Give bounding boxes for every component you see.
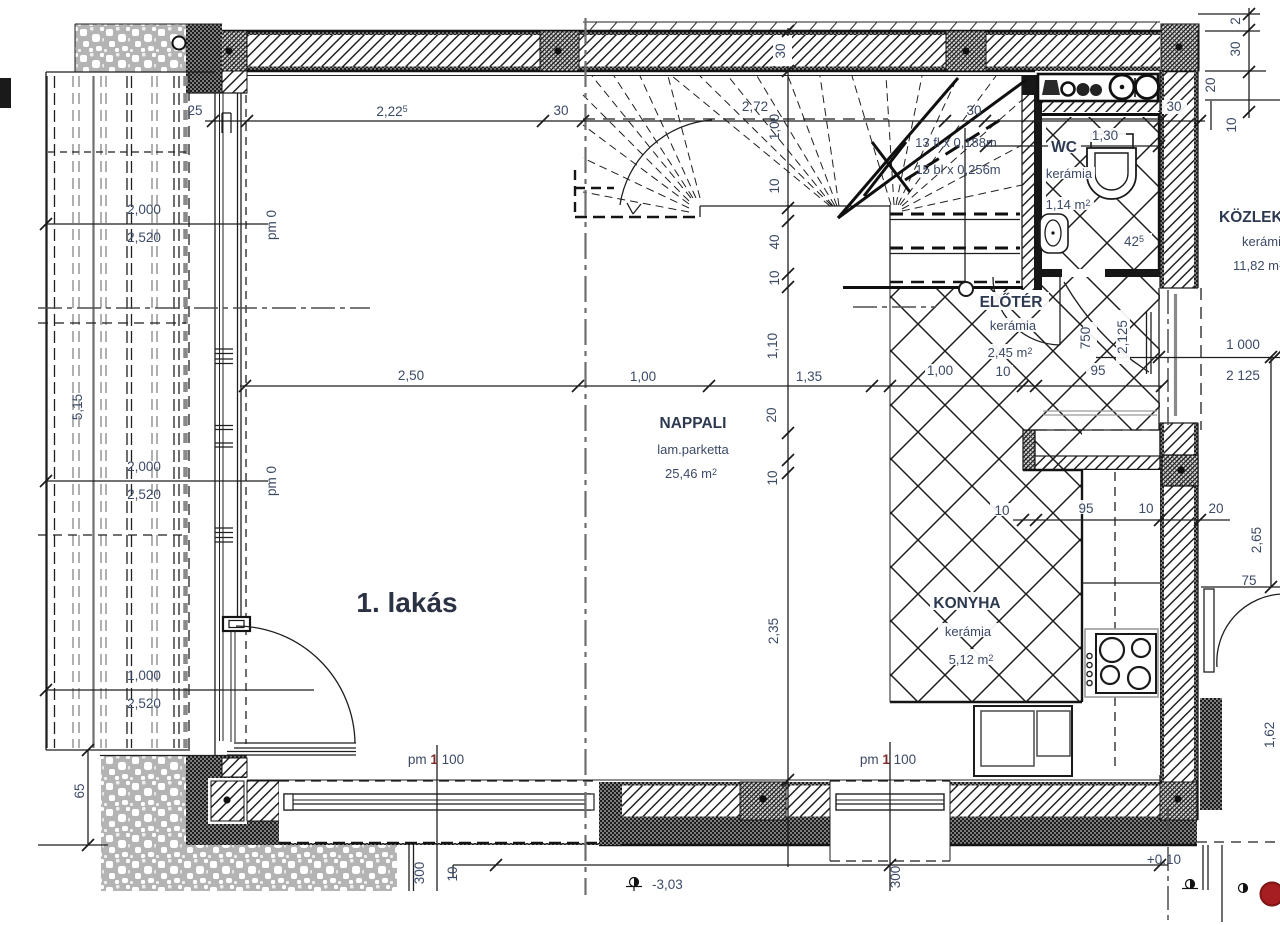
- svg-text:20: 20: [1208, 501, 1223, 516]
- svg-text:300: 300: [888, 866, 903, 889]
- svg-text:-3,03: -3,03: [652, 877, 683, 892]
- svg-text:ELŐTÉR: ELŐTÉR: [980, 293, 1043, 311]
- svg-text:1,35: 1,35: [796, 369, 822, 384]
- svg-text:10: 10: [1138, 501, 1153, 516]
- svg-text:2,000: 2,000: [127, 459, 161, 474]
- svg-text:10: 10: [767, 270, 782, 285]
- svg-text:2,72: 2,72: [742, 99, 768, 114]
- svg-text:2: 2: [1228, 17, 1243, 25]
- svg-text:1,62: 1,62: [1262, 722, 1277, 748]
- svg-text:30: 30: [966, 103, 981, 118]
- svg-text:1. lakás: 1. lakás: [356, 587, 457, 618]
- svg-text:5,12 m2: 5,12 m2: [949, 652, 994, 667]
- svg-text:1,000: 1,000: [127, 668, 161, 683]
- svg-text:300: 300: [412, 862, 427, 885]
- svg-text:kerámia: kerámia: [1046, 166, 1093, 181]
- svg-text:10: 10: [445, 866, 460, 881]
- svg-text:2,45 m2: 2,45 m2: [988, 345, 1033, 360]
- svg-text:10: 10: [767, 178, 782, 193]
- svg-text:2,520: 2,520: [127, 487, 161, 502]
- svg-text:10: 10: [994, 503, 1009, 518]
- svg-text:20: 20: [764, 407, 779, 422]
- svg-text:5,15: 5,15: [70, 394, 85, 420]
- svg-text:30: 30: [1166, 99, 1181, 114]
- svg-text:1,30: 1,30: [1092, 128, 1118, 143]
- svg-text:2,125: 2,125: [1115, 320, 1130, 354]
- svg-text:lam.parketta: lam.parketta: [657, 442, 729, 457]
- svg-text:95: 95: [1078, 501, 1093, 516]
- svg-text:2 125: 2 125: [1226, 368, 1260, 383]
- svg-text:75: 75: [1241, 573, 1256, 588]
- svg-text:1,00: 1,00: [927, 363, 953, 378]
- svg-text:1 000: 1 000: [1226, 337, 1260, 352]
- svg-text:KONYHA: KONYHA: [933, 595, 1000, 612]
- svg-text:30: 30: [773, 43, 788, 58]
- svg-text:pm 1 100: pm 1 100: [408, 752, 464, 767]
- svg-text:2,35: 2,35: [766, 618, 781, 644]
- svg-text:1,00: 1,00: [767, 114, 782, 140]
- svg-text:25,46 m2: 25,46 m2: [665, 466, 717, 481]
- svg-text:1,00: 1,00: [630, 369, 656, 384]
- svg-text:2,50: 2,50: [398, 368, 424, 383]
- svg-text:2,520: 2,520: [127, 696, 161, 711]
- svg-text:kerámia: kerámia: [1242, 234, 1280, 249]
- svg-text:13 fl x 0,188m: 13 fl x 0,188m: [915, 135, 997, 150]
- svg-text:11,82 m2: 11,82 m2: [1233, 258, 1280, 273]
- svg-text:pm 1 100: pm 1 100: [860, 752, 916, 767]
- svg-text:kerámia: kerámia: [990, 318, 1037, 333]
- svg-text:20: 20: [1203, 77, 1218, 92]
- svg-text:KÖZLEKED: KÖZLEKED: [1219, 209, 1280, 226]
- svg-text:65: 65: [72, 783, 87, 798]
- svg-text:WC: WC: [1051, 139, 1077, 156]
- svg-text:pm 0: pm 0: [264, 466, 279, 496]
- svg-text:2,520: 2,520: [127, 230, 161, 245]
- svg-text:30: 30: [553, 103, 568, 118]
- svg-text:30: 30: [1228, 41, 1243, 56]
- svg-text:10: 10: [765, 470, 780, 485]
- svg-text:1,14 m2: 1,14 m2: [1046, 197, 1091, 212]
- svg-text:95: 95: [1090, 363, 1105, 378]
- svg-text:+0,10: +0,10: [1147, 852, 1181, 867]
- svg-text:10: 10: [1224, 117, 1239, 132]
- svg-text:15 bl x 0,256m: 15 bl x 0,256m: [915, 162, 1000, 177]
- svg-text:2,65: 2,65: [1249, 527, 1264, 553]
- svg-text:40: 40: [767, 234, 782, 249]
- svg-text:10: 10: [995, 364, 1010, 379]
- svg-text:1,10: 1,10: [765, 333, 780, 359]
- svg-text:kerámia: kerámia: [945, 624, 992, 639]
- svg-text:2,000: 2,000: [127, 202, 161, 217]
- svg-text:750: 750: [1078, 327, 1093, 350]
- svg-text:pm 0: pm 0: [264, 210, 279, 240]
- svg-text:NAPPALI: NAPPALI: [660, 415, 727, 432]
- svg-text:25: 25: [187, 103, 202, 118]
